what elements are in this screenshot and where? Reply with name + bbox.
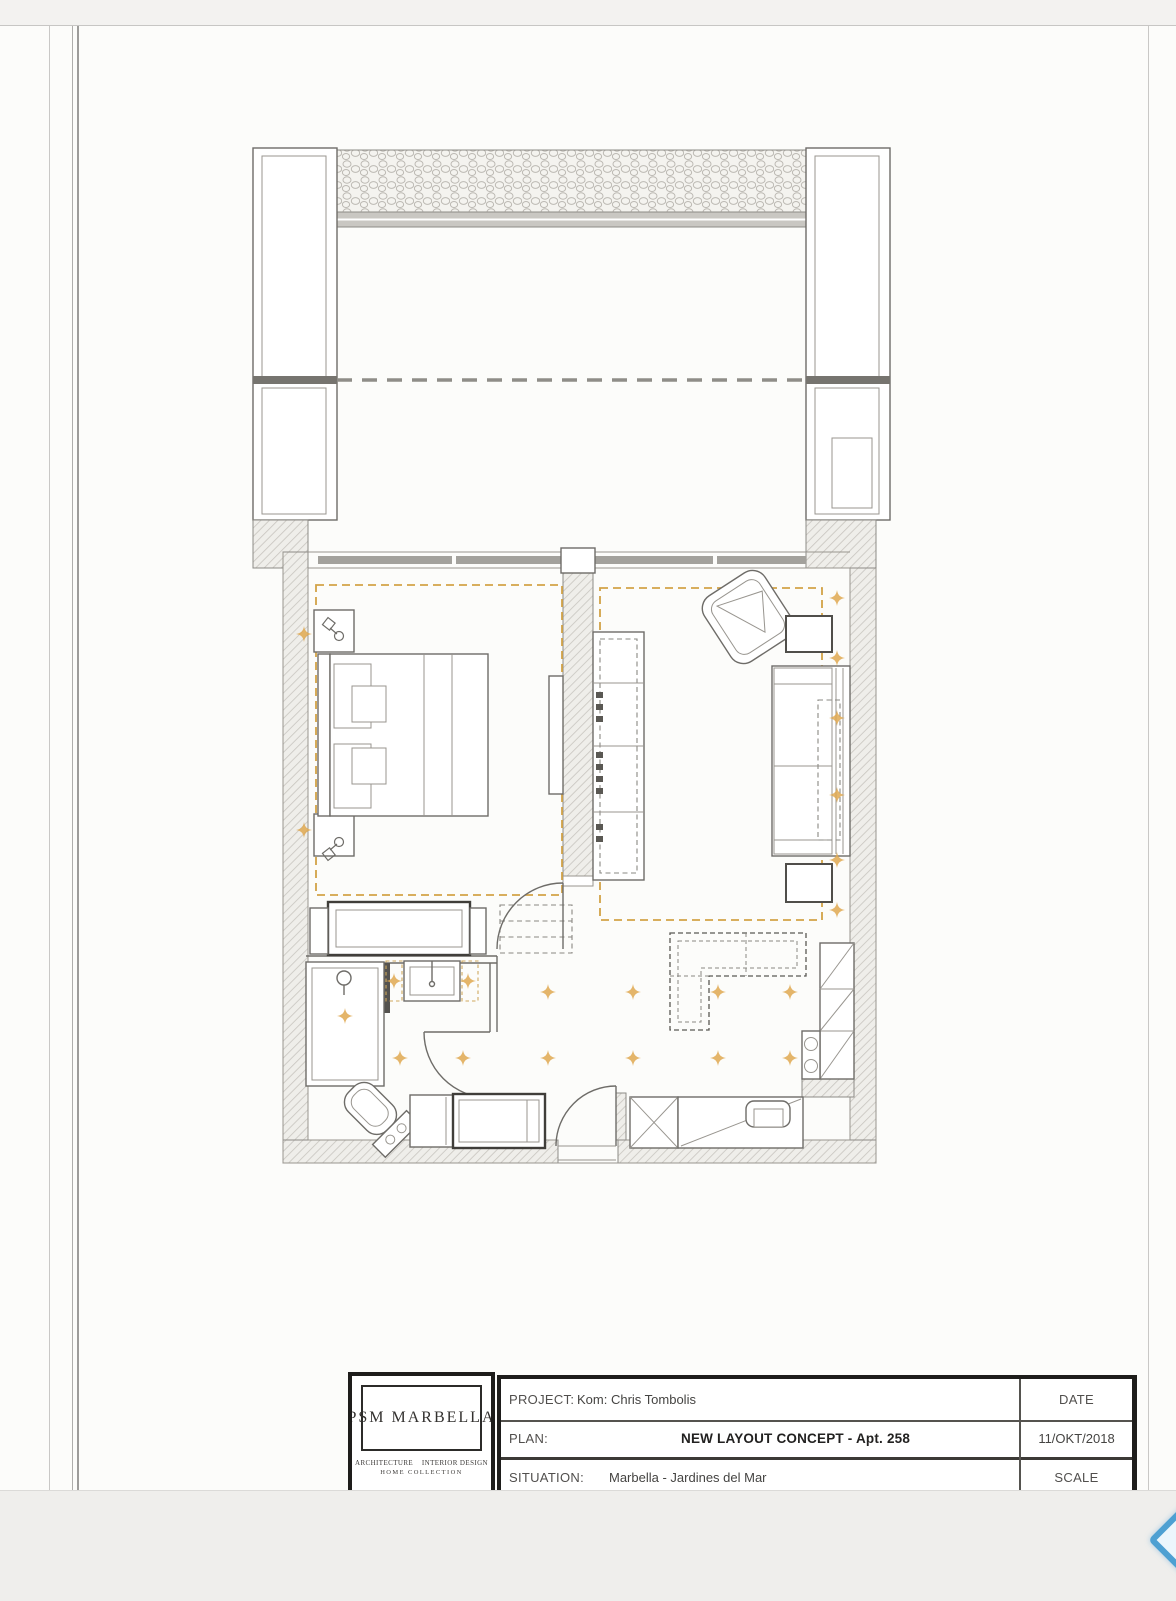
scale-label: SCALE bbox=[1021, 1470, 1132, 1485]
sheet-border-line bbox=[49, 26, 50, 1490]
date-label: DATE bbox=[1021, 1392, 1132, 1407]
living-room bbox=[593, 565, 850, 902]
bedroom bbox=[310, 610, 563, 955]
plan-label: PLAN: bbox=[509, 1431, 548, 1446]
plan-value: NEW LAYOUT CONCEPT - Apt. 258 bbox=[681, 1431, 910, 1446]
viewer-top-band bbox=[0, 0, 1176, 26]
divider-wall bbox=[563, 568, 593, 886]
bedroom-door-arc bbox=[497, 883, 563, 949]
window bbox=[318, 556, 452, 564]
logo-frame: PSM MARBELLA bbox=[361, 1385, 482, 1451]
bed-headboard bbox=[318, 654, 330, 816]
sheet-border-line bbox=[1148, 26, 1149, 1490]
hallway bbox=[453, 1086, 616, 1160]
washer bbox=[410, 1095, 454, 1147]
logo-text: PSM MARBELLA bbox=[348, 1409, 495, 1427]
logo-box: PSM MARBELLA ARCHITECTURE INTERIOR DESIG… bbox=[348, 1372, 495, 1490]
situation-label: SITUATION: bbox=[509, 1470, 584, 1485]
window bbox=[456, 556, 561, 564]
planter bbox=[832, 438, 872, 508]
window bbox=[595, 556, 713, 564]
project-value: Kom: Chris Tombolis bbox=[577, 1392, 696, 1407]
side-table bbox=[786, 864, 832, 902]
tall-units bbox=[820, 943, 854, 1079]
left-wall bbox=[283, 552, 308, 1163]
armchair bbox=[697, 565, 800, 670]
bathroom-door-arc bbox=[424, 1032, 490, 1098]
situation-value: Marbella - Jardines del Mar bbox=[609, 1470, 767, 1485]
upper-cabinets bbox=[670, 933, 806, 1030]
nightstand bbox=[314, 814, 354, 856]
title-block-table: PROJECT: Kom: Chris Tombolis PLAN: NEW L… bbox=[497, 1375, 1137, 1490]
date-value: 11/OKT/2018 bbox=[1021, 1431, 1132, 1446]
logo-tagline-interior-design: INTERIOR DESIGN bbox=[422, 1459, 488, 1467]
sheet-border-line bbox=[72, 26, 73, 1490]
tv-panel bbox=[549, 676, 563, 794]
hob bbox=[802, 1031, 820, 1079]
logo-tagline-home-collection: HOME COLLECTION bbox=[352, 1469, 491, 1476]
entry-door-arc bbox=[556, 1086, 616, 1146]
side-table bbox=[786, 616, 832, 652]
sofa bbox=[772, 666, 850, 856]
viewer-bottom-band bbox=[0, 1490, 1176, 1601]
page: { "page": { "sheet_color": "#fcfcfa", "b… bbox=[0, 0, 1176, 1600]
pergola-hatch bbox=[337, 150, 806, 212]
sheet-border-line bbox=[77, 26, 79, 1490]
floor-plan: .s1{fill:none;stroke:#6e6c68;stroke-widt… bbox=[240, 135, 900, 1175]
floor-plan-svg: .s1{fill:none;stroke:#6e6c68;stroke-widt… bbox=[240, 135, 900, 1175]
terrace bbox=[253, 148, 890, 520]
kitchen bbox=[630, 933, 854, 1148]
entry-mat bbox=[500, 905, 572, 953]
logo-tagline-architecture: ARCHITECTURE bbox=[355, 1459, 413, 1467]
window bbox=[717, 556, 806, 564]
project-label: PROJECT: bbox=[509, 1392, 574, 1407]
